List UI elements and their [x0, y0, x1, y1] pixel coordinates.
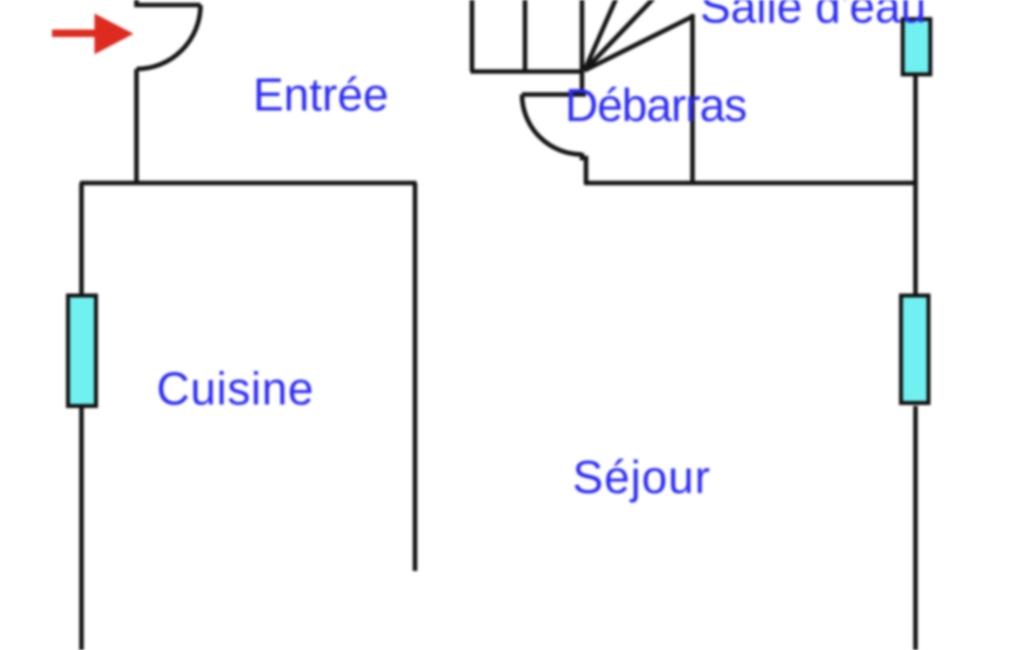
svg-text:Séjour: Séjour [573, 451, 711, 503]
svg-text:Cuisine: Cuisine [157, 363, 315, 415]
svg-text:Débarras: Débarras [565, 79, 746, 131]
svg-text:Entrée: Entrée [253, 69, 389, 121]
svg-text:Salle d'eau: Salle d'eau [700, 0, 926, 33]
